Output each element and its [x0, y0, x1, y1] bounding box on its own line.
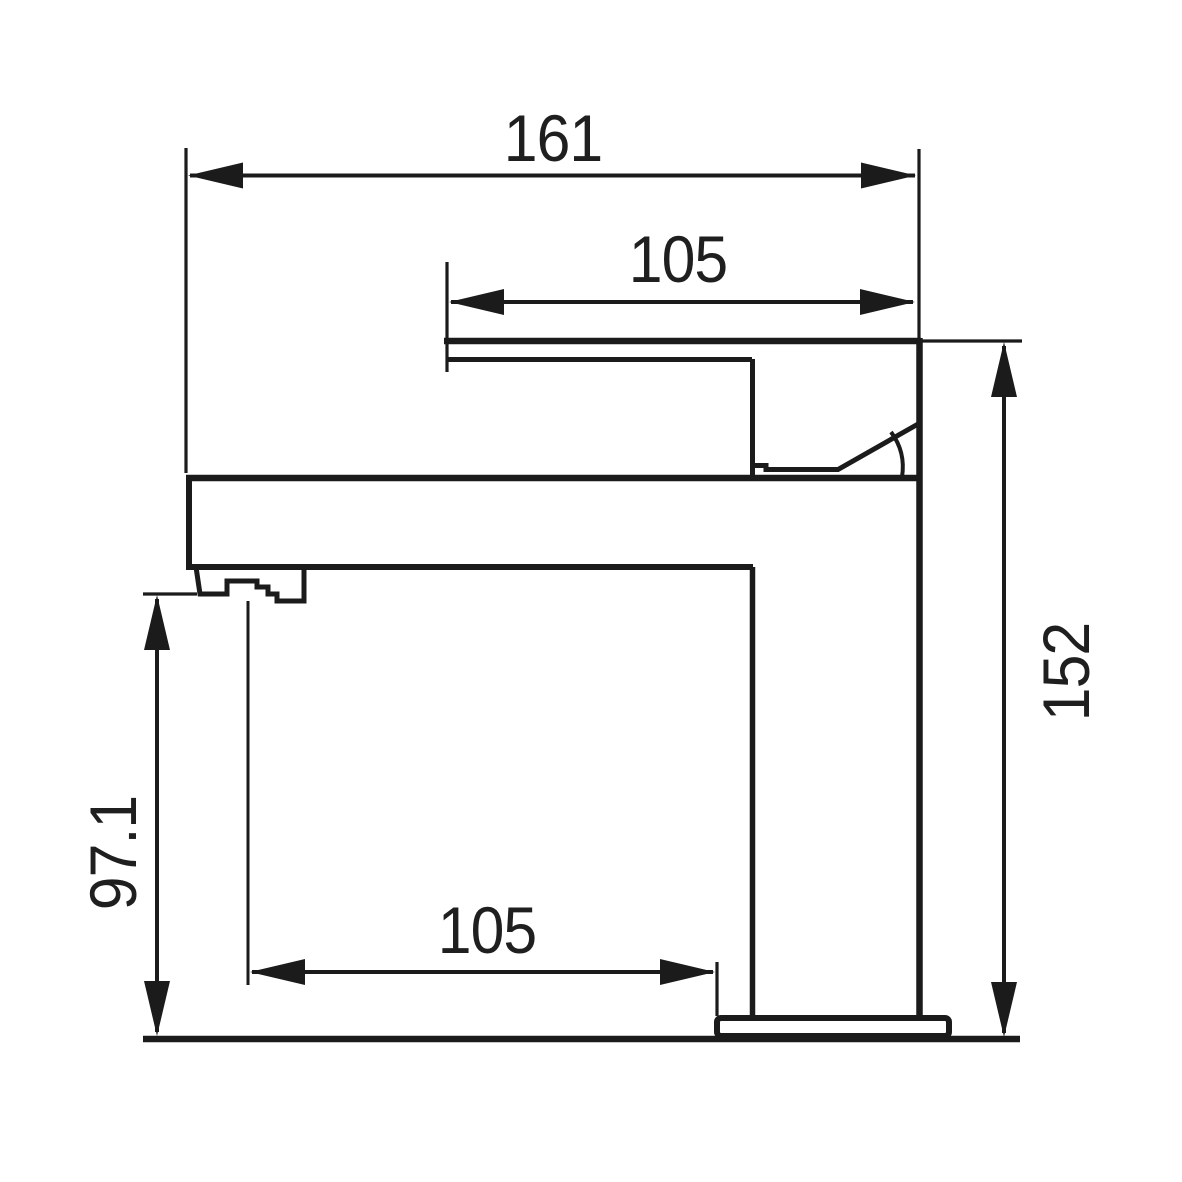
arrowhead-left [188, 163, 243, 189]
arrowhead-right [861, 163, 916, 189]
handle-bottom-contour [750, 424, 919, 470]
arrowhead-up [144, 595, 170, 650]
arrowhead-left [449, 289, 504, 315]
arrowhead-left [250, 959, 305, 985]
faucet-line-drawing [0, 0, 1182, 1182]
base-plate [717, 1018, 949, 1036]
arrowhead-up [991, 342, 1017, 397]
dim-label-overall-width: 161 [504, 105, 603, 171]
dimension-spout-reach [250, 959, 717, 1016]
dimension-overall-width [186, 148, 919, 473]
arrowhead-right [860, 289, 915, 315]
faucet-outline [143, 338, 1020, 1039]
dimension-spout-outlet-height [143, 594, 197, 1036]
dimension-overall-height [921, 341, 1022, 1037]
dim-label-spout-reach: 105 [438, 897, 537, 963]
dim-label-spout-outlet-height: 97.1 [80, 796, 146, 911]
aerator-outlet-detail [196, 567, 304, 601]
arrowhead-right [660, 959, 715, 985]
technical-drawing-canvas: 161 105 152 97.1 105 [0, 0, 1182, 1182]
arrowhead-down [991, 982, 1017, 1037]
dim-label-overall-height: 152 [1033, 623, 1099, 722]
dim-label-handle-reach: 105 [629, 226, 728, 292]
arrowhead-down [144, 981, 170, 1036]
